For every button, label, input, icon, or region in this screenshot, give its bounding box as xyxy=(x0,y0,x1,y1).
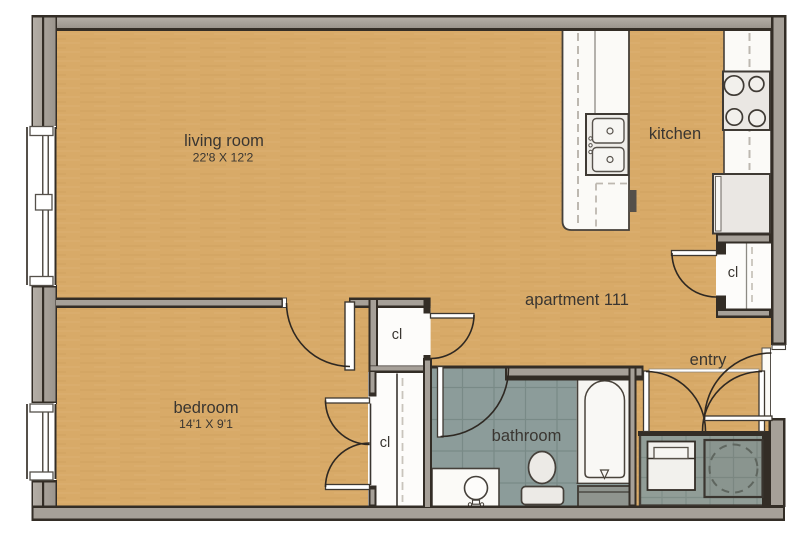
svg-text:kitchen: kitchen xyxy=(649,125,701,143)
svg-text:cl: cl xyxy=(380,435,390,451)
svg-text:bathroom: bathroom xyxy=(492,427,562,445)
svg-text:apartment 111: apartment 111 xyxy=(525,291,629,309)
svg-text:22'8 X 12'2: 22'8 X 12'2 xyxy=(193,151,254,165)
svg-text:cl: cl xyxy=(728,265,738,281)
svg-text:entry: entry xyxy=(690,351,727,369)
svg-text:bedroom: bedroom xyxy=(173,399,238,417)
svg-text:14'1 X 9'1: 14'1 X 9'1 xyxy=(179,417,233,431)
svg-text:living room: living room xyxy=(184,132,264,150)
svg-text:cl: cl xyxy=(392,327,402,343)
